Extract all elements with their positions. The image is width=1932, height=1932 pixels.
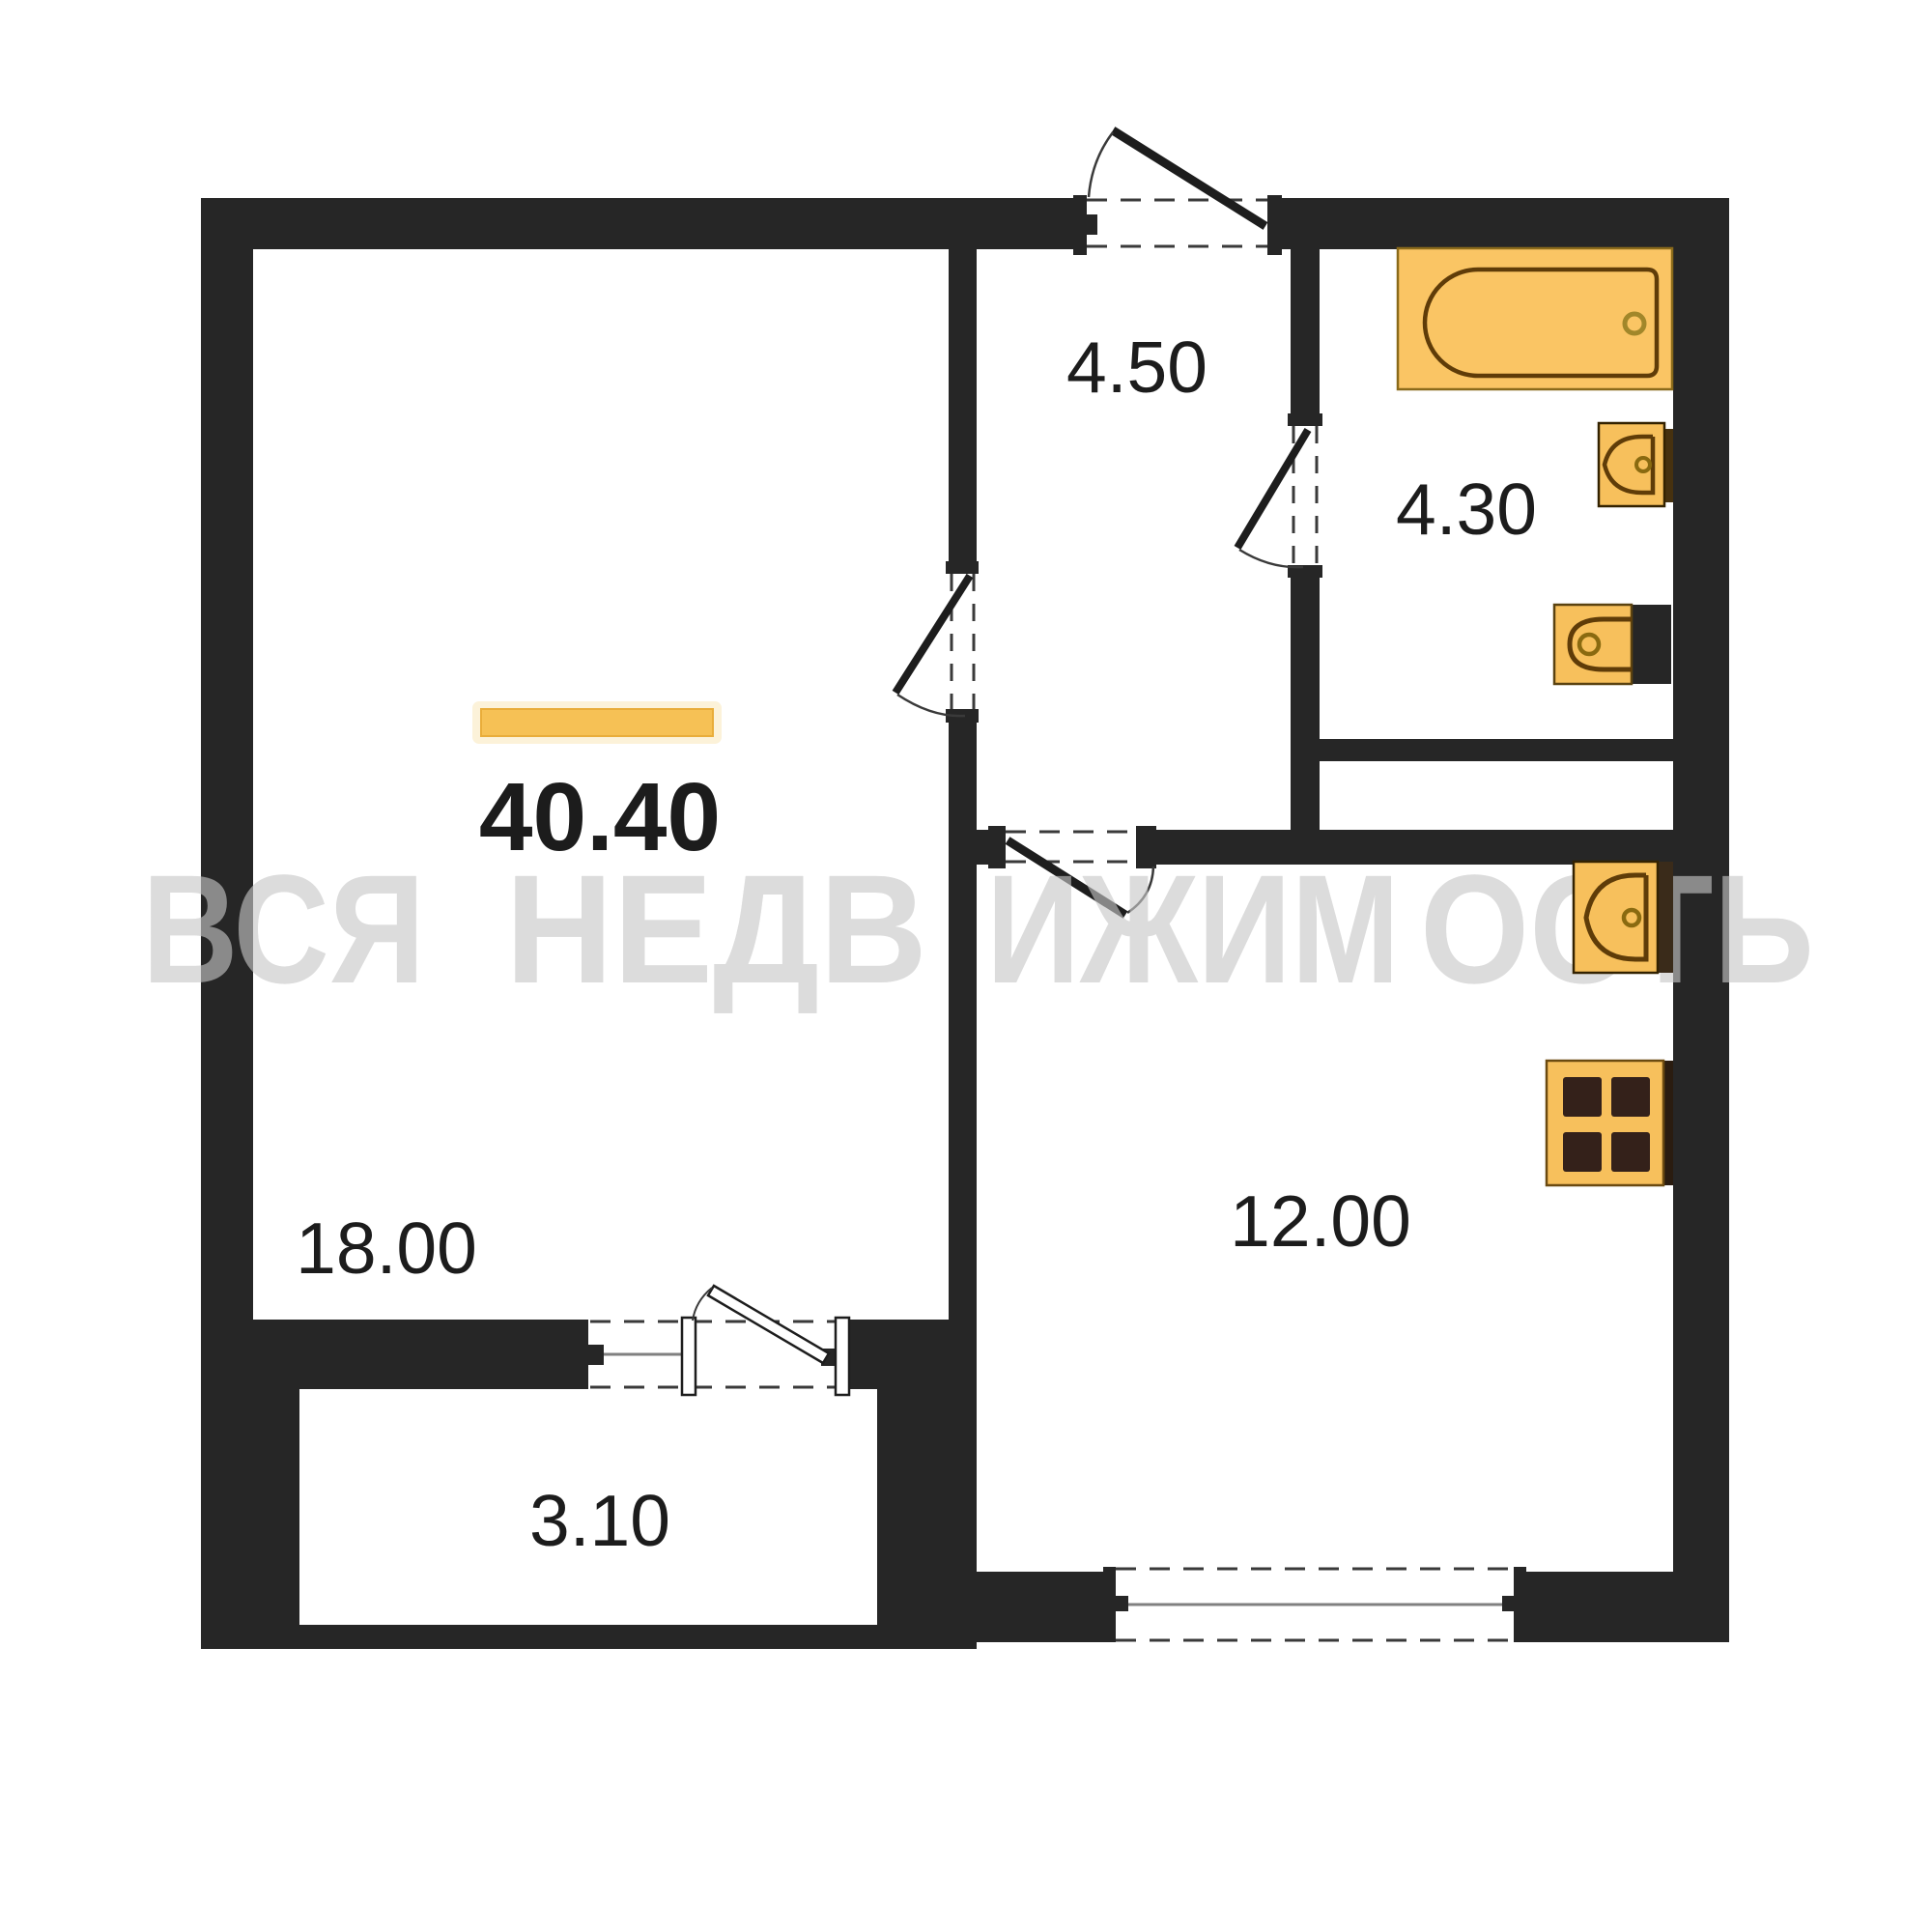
svg-text:4.30: 4.30: [1396, 469, 1537, 550]
svg-text:4.50: 4.50: [1066, 327, 1207, 408]
svg-text:ИЖИМ: ИЖИМ: [986, 842, 1400, 1015]
svg-text:ВСЯ: ВСЯ: [142, 842, 425, 1015]
svg-text:40.40: 40.40: [479, 763, 721, 871]
svg-text:12.00: 12.00: [1230, 1180, 1411, 1262]
svg-text:18.00: 18.00: [296, 1207, 477, 1289]
svg-text:3.10: 3.10: [529, 1480, 670, 1561]
